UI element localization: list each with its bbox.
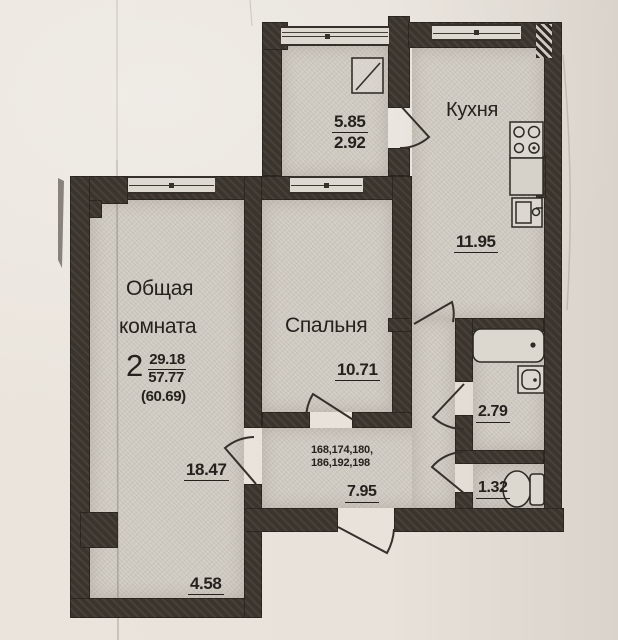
wall-kitchen-bottom-piece [388,318,412,332]
wall-left-pilaster [80,512,118,548]
room-kitchen-floor [412,48,544,318]
bedroom-area: 10.71 [335,361,380,381]
wall-bedroom-bottom-right [352,412,412,428]
wall-left [70,176,90,618]
wall-hall-bottom-right [394,508,564,532]
kitchen-area: 11.95 [454,233,498,253]
apartment-summary: 2 29.18 57.77 [126,352,186,386]
wall-bathroom-left-upper [455,318,473,382]
kitchen-window [432,24,521,41]
balcony-area-coeff: 2.92 [334,134,366,152]
apartment-numbers: 168,174,180, 186,192,198 [311,444,373,470]
room-balcony-floor [281,46,388,176]
wall-living-bedroom-upper [244,176,262,428]
living-area: 18.47 [184,461,229,481]
living-label-line2: комната [119,316,196,338]
total-area: 57.77 [148,370,186,386]
wall-hall-bottom-left [244,508,338,532]
living-area-lower: 4.58 [188,575,224,595]
wall-living-bedroom-lower [244,484,262,618]
bedroom-label: Спальня [285,315,367,337]
apartment-numbers-line2: 186,192,198 [311,457,373,470]
wc-area: 1.32 [476,480,510,499]
wall-kitchen-notch [536,156,546,198]
kitchen-label: Кухня [446,100,498,121]
living-label-line1: Общая [126,278,193,300]
bedroom-window [290,176,363,194]
floorplan-scan: Кухня 11.95 5.85 2.92 Общая комната 2 29… [0,0,618,640]
hallway-area: 7.95 [345,484,379,503]
apartment-numbers-line1: 168,174,180, [311,444,373,457]
wall-bedroom-bottom-left [262,412,310,428]
wall-balcony-right-upper [388,16,410,108]
living-window [128,176,215,194]
balcony-glazing [281,26,389,46]
wall-bathroom-wc-divider [455,450,544,464]
total-area-with-coeff: (60.69) [141,389,186,405]
balcony-area-full: 5.85 [332,113,368,133]
wall-balcony-right-lower [388,148,410,176]
wall-left-step [88,200,102,218]
wall-bottom-living [70,598,262,618]
entrance-door [338,527,394,553]
wall-bathroom-left-mid [455,415,473,455]
wall-right [544,22,562,532]
balcony-areas: 5.85 2.92 [332,113,368,152]
bathroom-area: 2.79 [476,404,510,423]
living-area-total: 29.18 [148,352,186,370]
wall-bedroom-kitchen [392,176,412,428]
vent-shaft-hatch [536,24,552,58]
room-count: 2 [126,352,143,380]
room-bathroom-floor [473,332,544,450]
room-hallway-corridor-floor [412,318,455,508]
